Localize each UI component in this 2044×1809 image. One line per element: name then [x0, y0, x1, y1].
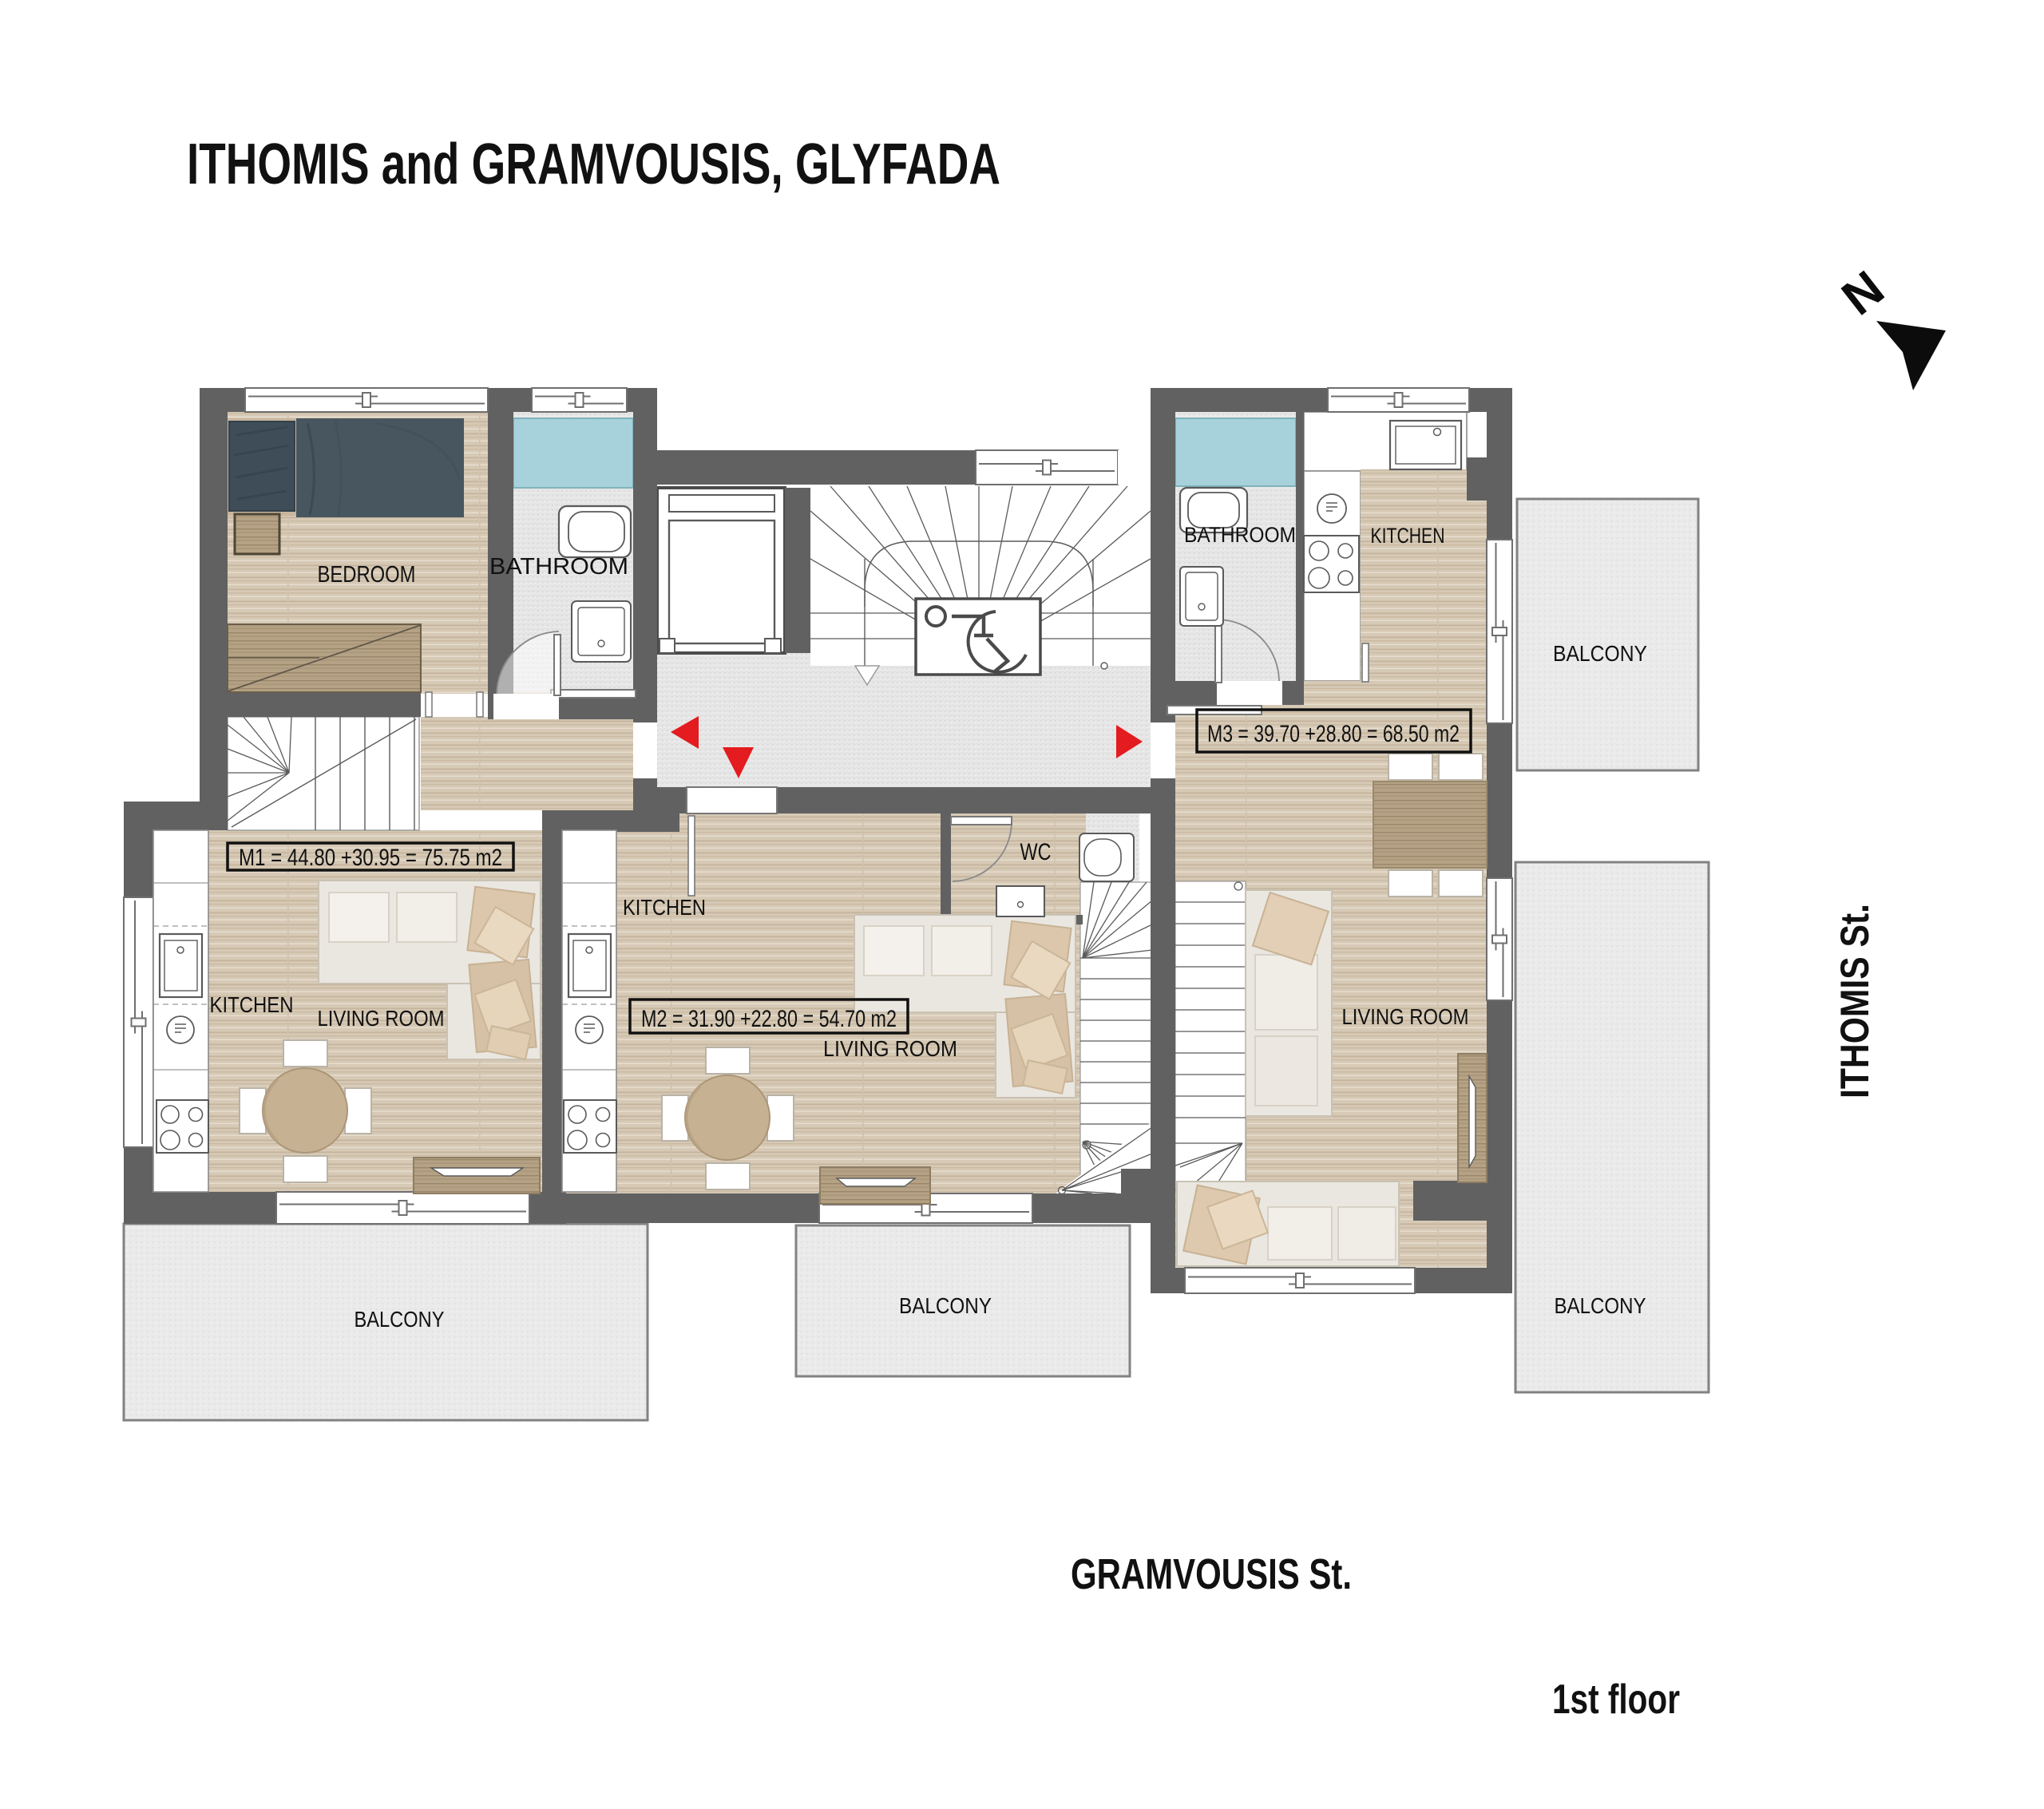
svg-text:BATHROOM: BATHROOM: [1184, 523, 1296, 547]
svg-text:WC: WC: [1020, 839, 1052, 865]
svg-text:M1 = 44.80 +30.95 = 75.75 m2: M1 = 44.80 +30.95 = 75.75 m2: [239, 845, 502, 871]
svg-text:ITHOMIS and GRAMVOUSIS, GLYFAD: ITHOMIS and GRAMVOUSIS, GLYFADA: [187, 133, 1000, 196]
svg-text:KITCHEN: KITCHEN: [1371, 524, 1445, 548]
svg-text:BATHROOM: BATHROOM: [489, 554, 628, 580]
svg-text:LIVING ROOM: LIVING ROOM: [318, 1006, 445, 1031]
svg-text:M2 = 31.90 +22.80 = 54.70 m2: M2 = 31.90 +22.80 = 54.70 m2: [641, 1006, 897, 1032]
svg-text:KITCHEN: KITCHEN: [623, 895, 706, 920]
svg-text:1st floor: 1st floor: [1552, 1676, 1680, 1723]
svg-text:ITHOMIS St.: ITHOMIS St.: [1832, 904, 1877, 1098]
svg-text:BEDROOM: BEDROOM: [318, 562, 416, 588]
svg-text:LIVING ROOM: LIVING ROOM: [823, 1036, 957, 1061]
svg-text:BALCONY: BALCONY: [1555, 1293, 1646, 1318]
svg-text:KITCHEN: KITCHEN: [210, 992, 294, 1017]
svg-text:BALCONY: BALCONY: [899, 1293, 992, 1318]
svg-text:BALCONY: BALCONY: [355, 1307, 445, 1332]
svg-text:LIVING ROOM: LIVING ROOM: [1342, 1004, 1469, 1029]
svg-text:GRAMVOUSIS St.: GRAMVOUSIS St.: [1071, 1550, 1352, 1598]
svg-text:M3 = 39.70 +28.80 = 68.50 m2: M3 = 39.70 +28.80 = 68.50 m2: [1207, 721, 1460, 747]
svg-text:BALCONY: BALCONY: [1553, 641, 1647, 666]
